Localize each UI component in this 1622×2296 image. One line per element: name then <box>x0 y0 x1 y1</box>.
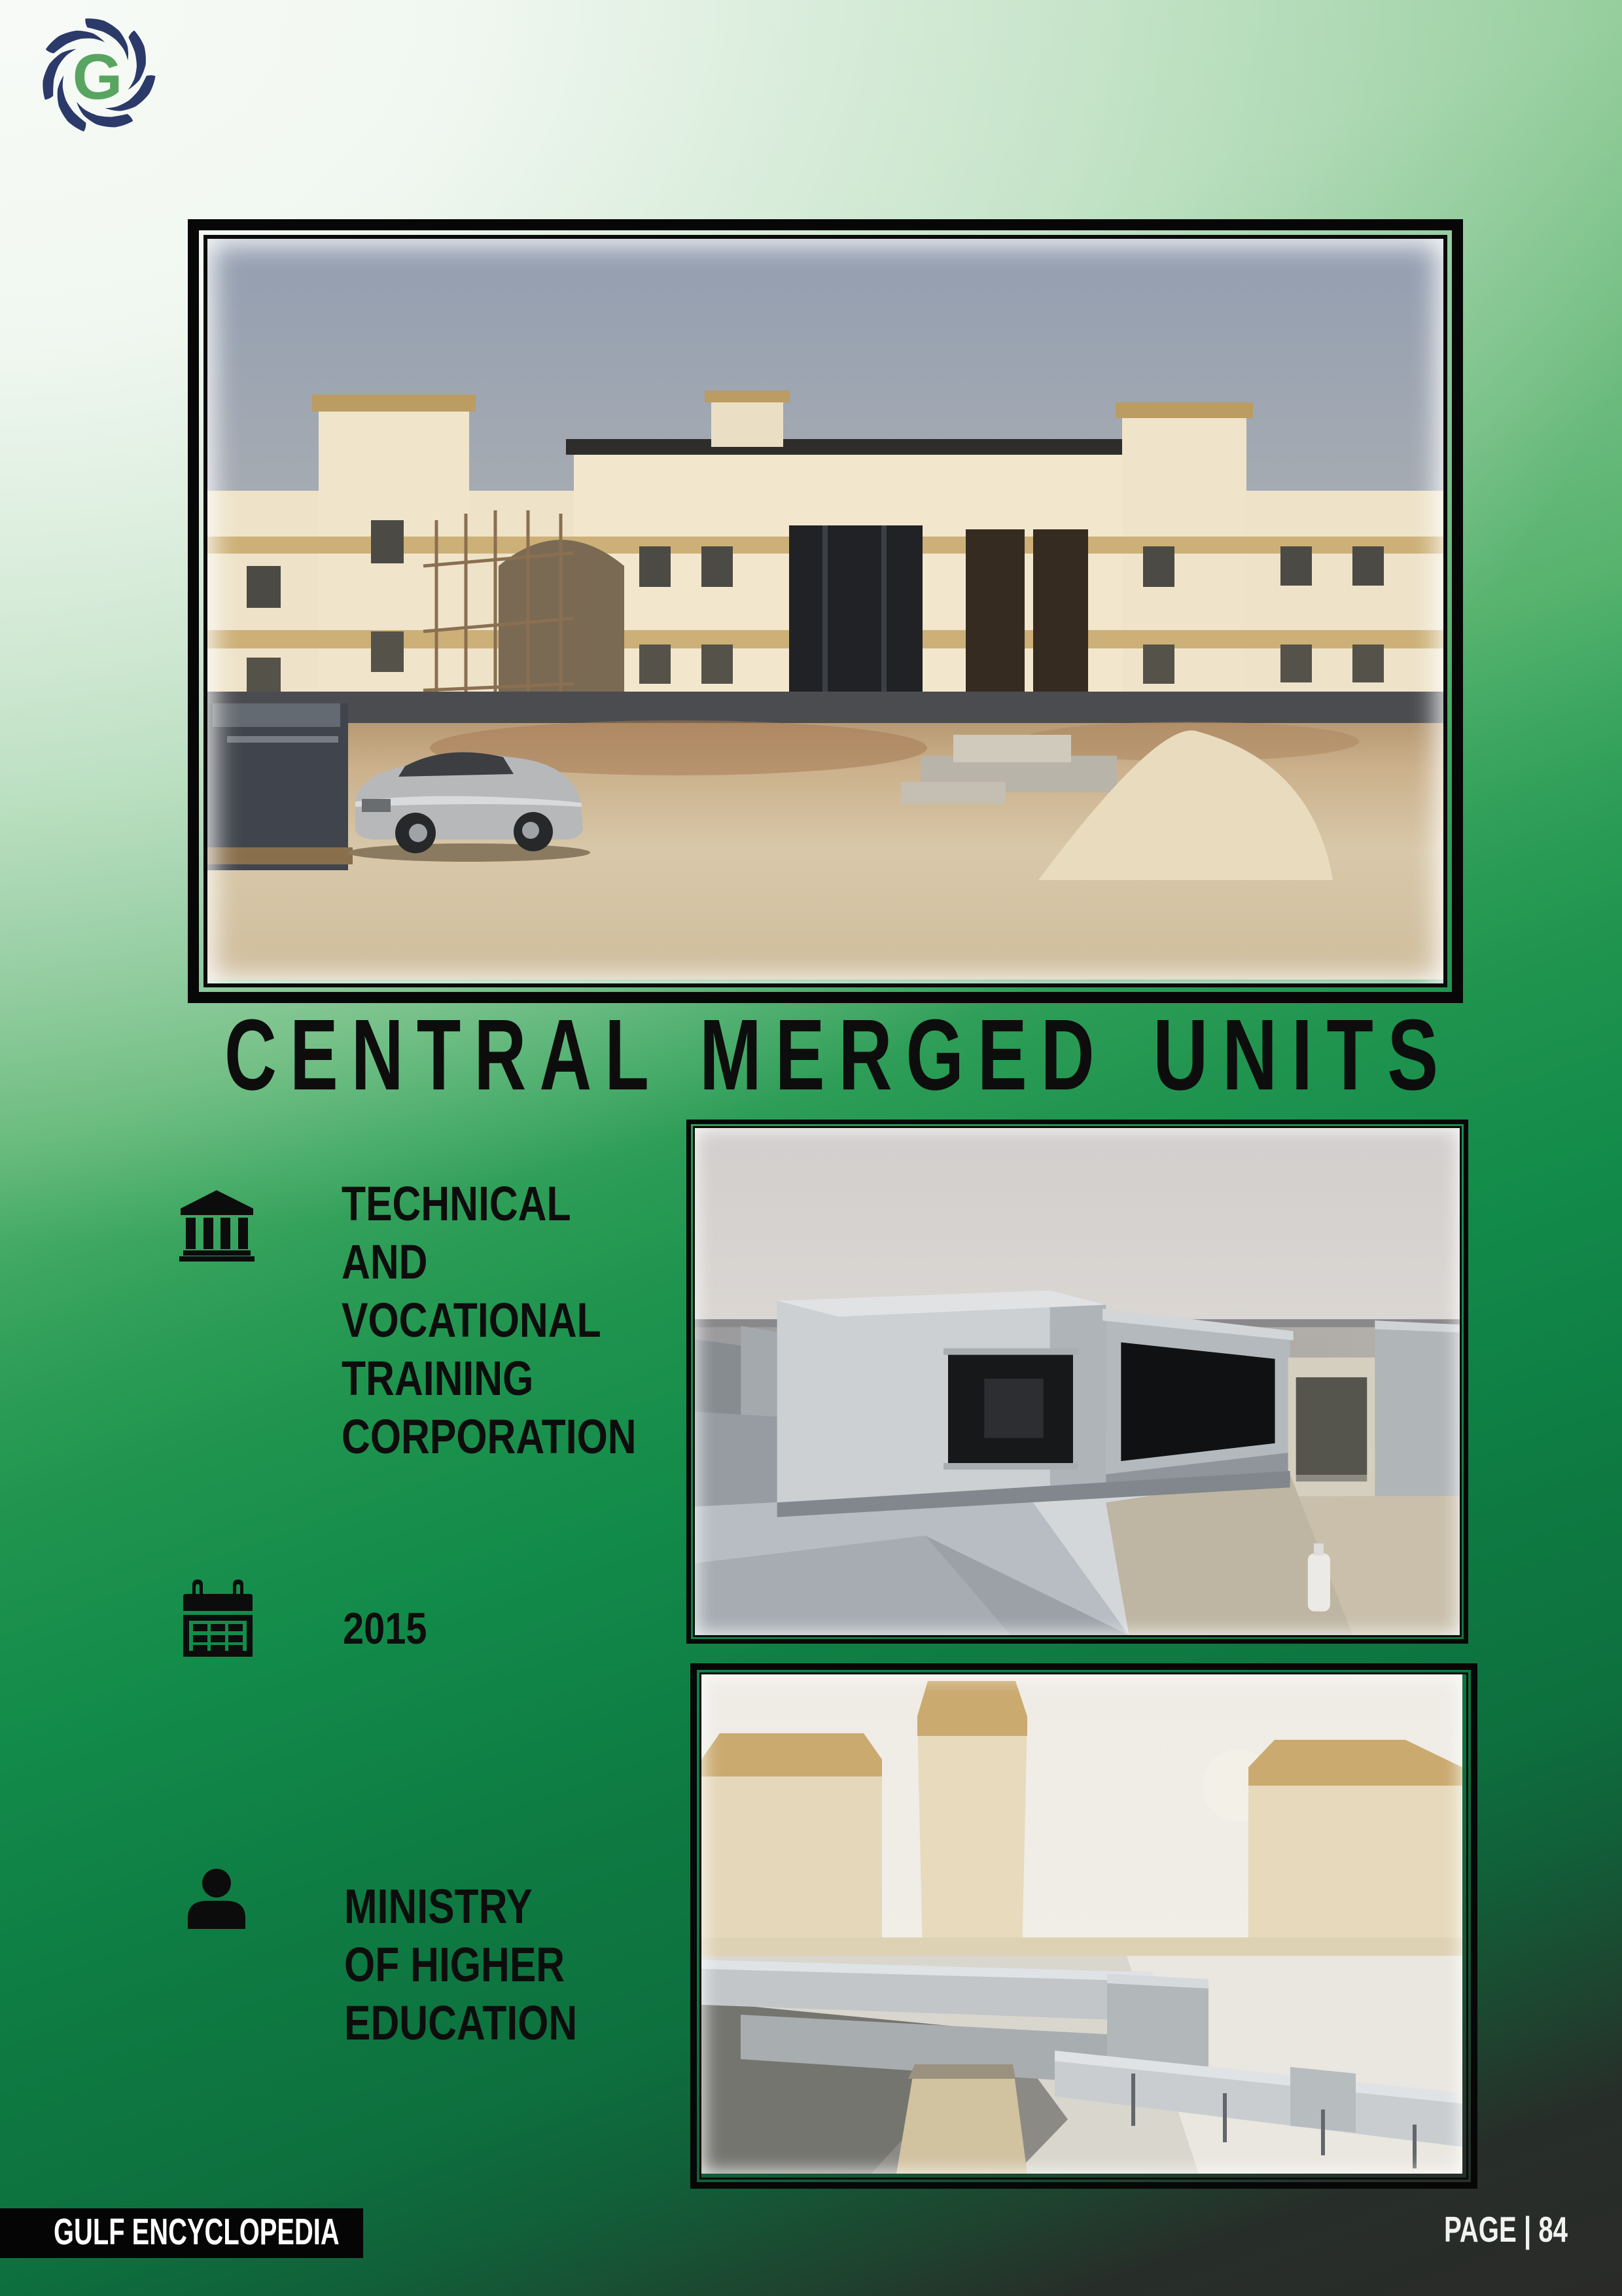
svg-text:G: G <box>73 41 123 113</box>
